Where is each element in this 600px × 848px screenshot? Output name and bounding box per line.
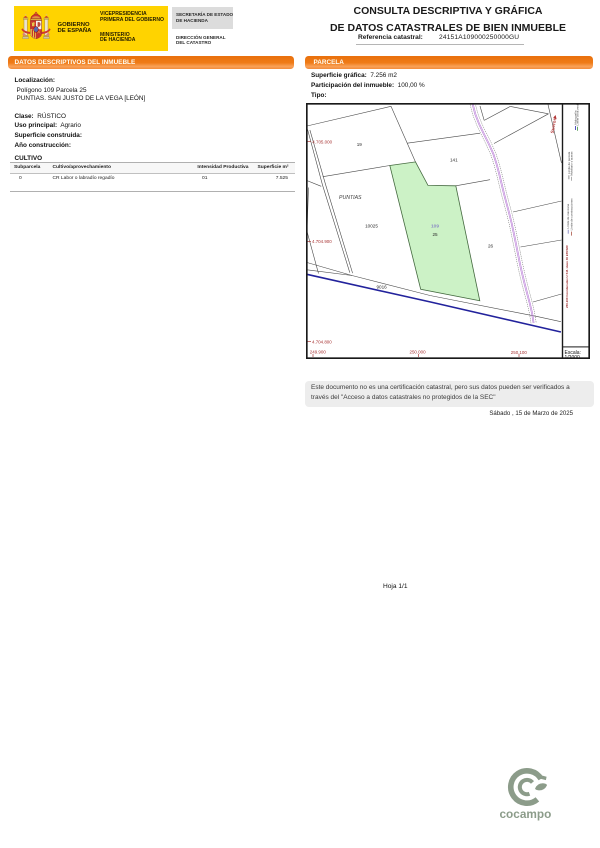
svg-text:19: 19 (357, 142, 363, 147)
svg-text:26: 26 (488, 244, 494, 249)
svg-text:4.705.000: 4.705.000 (312, 139, 332, 144)
svg-text:109: 109 (431, 224, 439, 230)
svg-text:PUNTIAS: PUNTIAS (339, 195, 362, 201)
svg-text:9016: 9016 (377, 284, 388, 289)
svg-text:Límite de construcciones: Límite de construcciones (569, 198, 573, 231)
svg-text:141: 141 (450, 158, 458, 163)
svg-text:25: 25 (433, 232, 439, 237)
svg-text:Límite zona verde: Límite zona verde (576, 103, 580, 126)
svg-text:10025: 10025 (365, 224, 378, 229)
svg-text:250.100: 250.100 (511, 350, 528, 355)
svg-text:249.900: 249.900 (310, 350, 327, 355)
svg-text:4.704.800: 4.704.800 (312, 339, 332, 344)
svg-text:4.704.900: 4.704.900 (312, 239, 332, 244)
svg-text:250.000: 250.000 (410, 350, 427, 355)
svg-text:250.100 Coordenadas U.T.M. Hus: 250.100 Coordenadas U.T.M. Huso 30 ETRS8… (565, 245, 569, 308)
svg-text:Mobiliario y aceras: Mobiliario y aceras (569, 151, 573, 176)
